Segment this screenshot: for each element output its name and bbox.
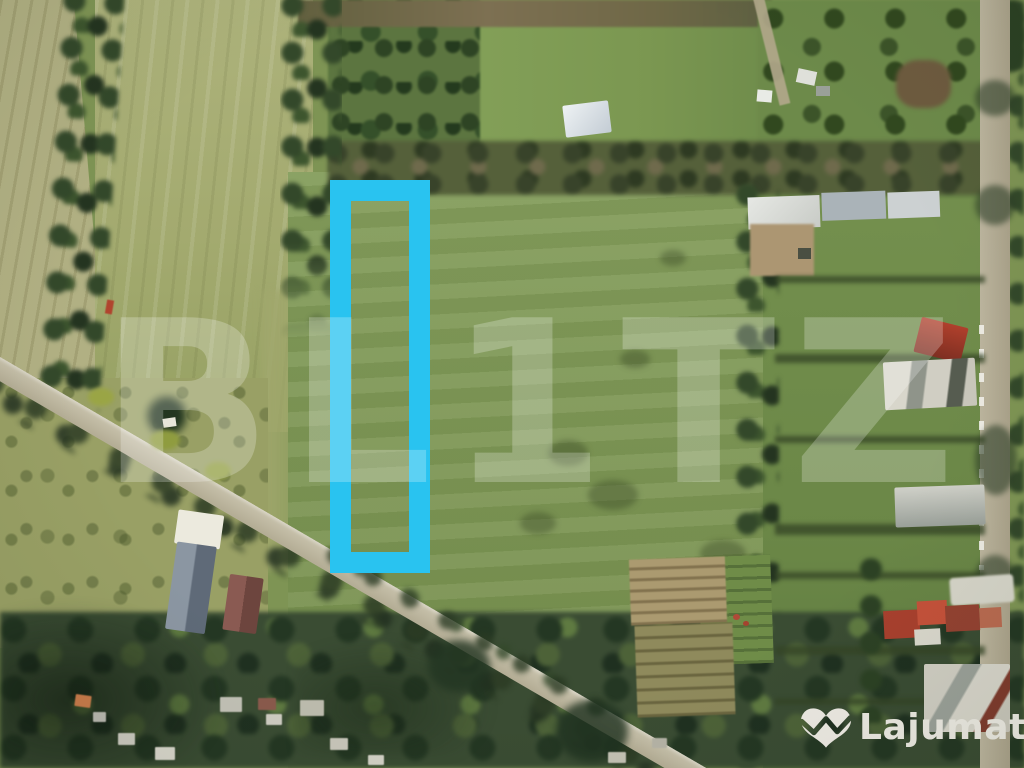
tilled-plot	[629, 556, 727, 625]
road-shadow	[975, 185, 1015, 225]
house-roof	[118, 733, 135, 745]
building-roof	[821, 191, 886, 221]
house-roof	[220, 697, 242, 712]
weed-patch	[660, 250, 686, 266]
house-roof	[93, 712, 106, 722]
house-cluster-red-roofs	[883, 597, 1008, 657]
house-roof-red	[979, 607, 1002, 628]
small-white-structure	[757, 89, 773, 102]
shed-roof	[816, 86, 830, 96]
heart-zigzag-icon	[798, 704, 854, 752]
house-roof	[266, 714, 282, 725]
red-object	[733, 614, 740, 620]
house-roof	[330, 738, 348, 750]
lajumate-logo: Lajumate.ro	[798, 704, 1024, 752]
building-grey-roof	[165, 541, 217, 634]
watermark-text: BL1TZ	[100, 292, 972, 518]
greenhouse-roof	[562, 100, 612, 137]
house-roof	[652, 738, 667, 748]
house-roof	[258, 698, 276, 710]
house-roof-red	[917, 600, 948, 626]
logo-text: Lajumate	[859, 704, 1024, 752]
house-roof-red	[945, 604, 980, 632]
hedge-vertical	[858, 558, 884, 723]
tilled-strip-top	[298, 0, 772, 27]
tilled-plot	[634, 622, 735, 717]
red-object	[743, 621, 749, 626]
house-roof	[368, 755, 384, 765]
house-roof	[914, 628, 941, 645]
road-shadow	[975, 80, 1015, 116]
house-roof	[155, 747, 175, 760]
house-roof	[300, 700, 324, 716]
building-roof	[887, 191, 940, 219]
tree-over-road	[428, 640, 490, 692]
aerial-listing-photo: BL1TZ Lajumate.ro	[0, 0, 1024, 768]
house-roof	[74, 694, 92, 708]
house-roof	[608, 752, 626, 763]
shed-roof	[798, 248, 811, 259]
bare-soil-patch	[896, 60, 951, 108]
